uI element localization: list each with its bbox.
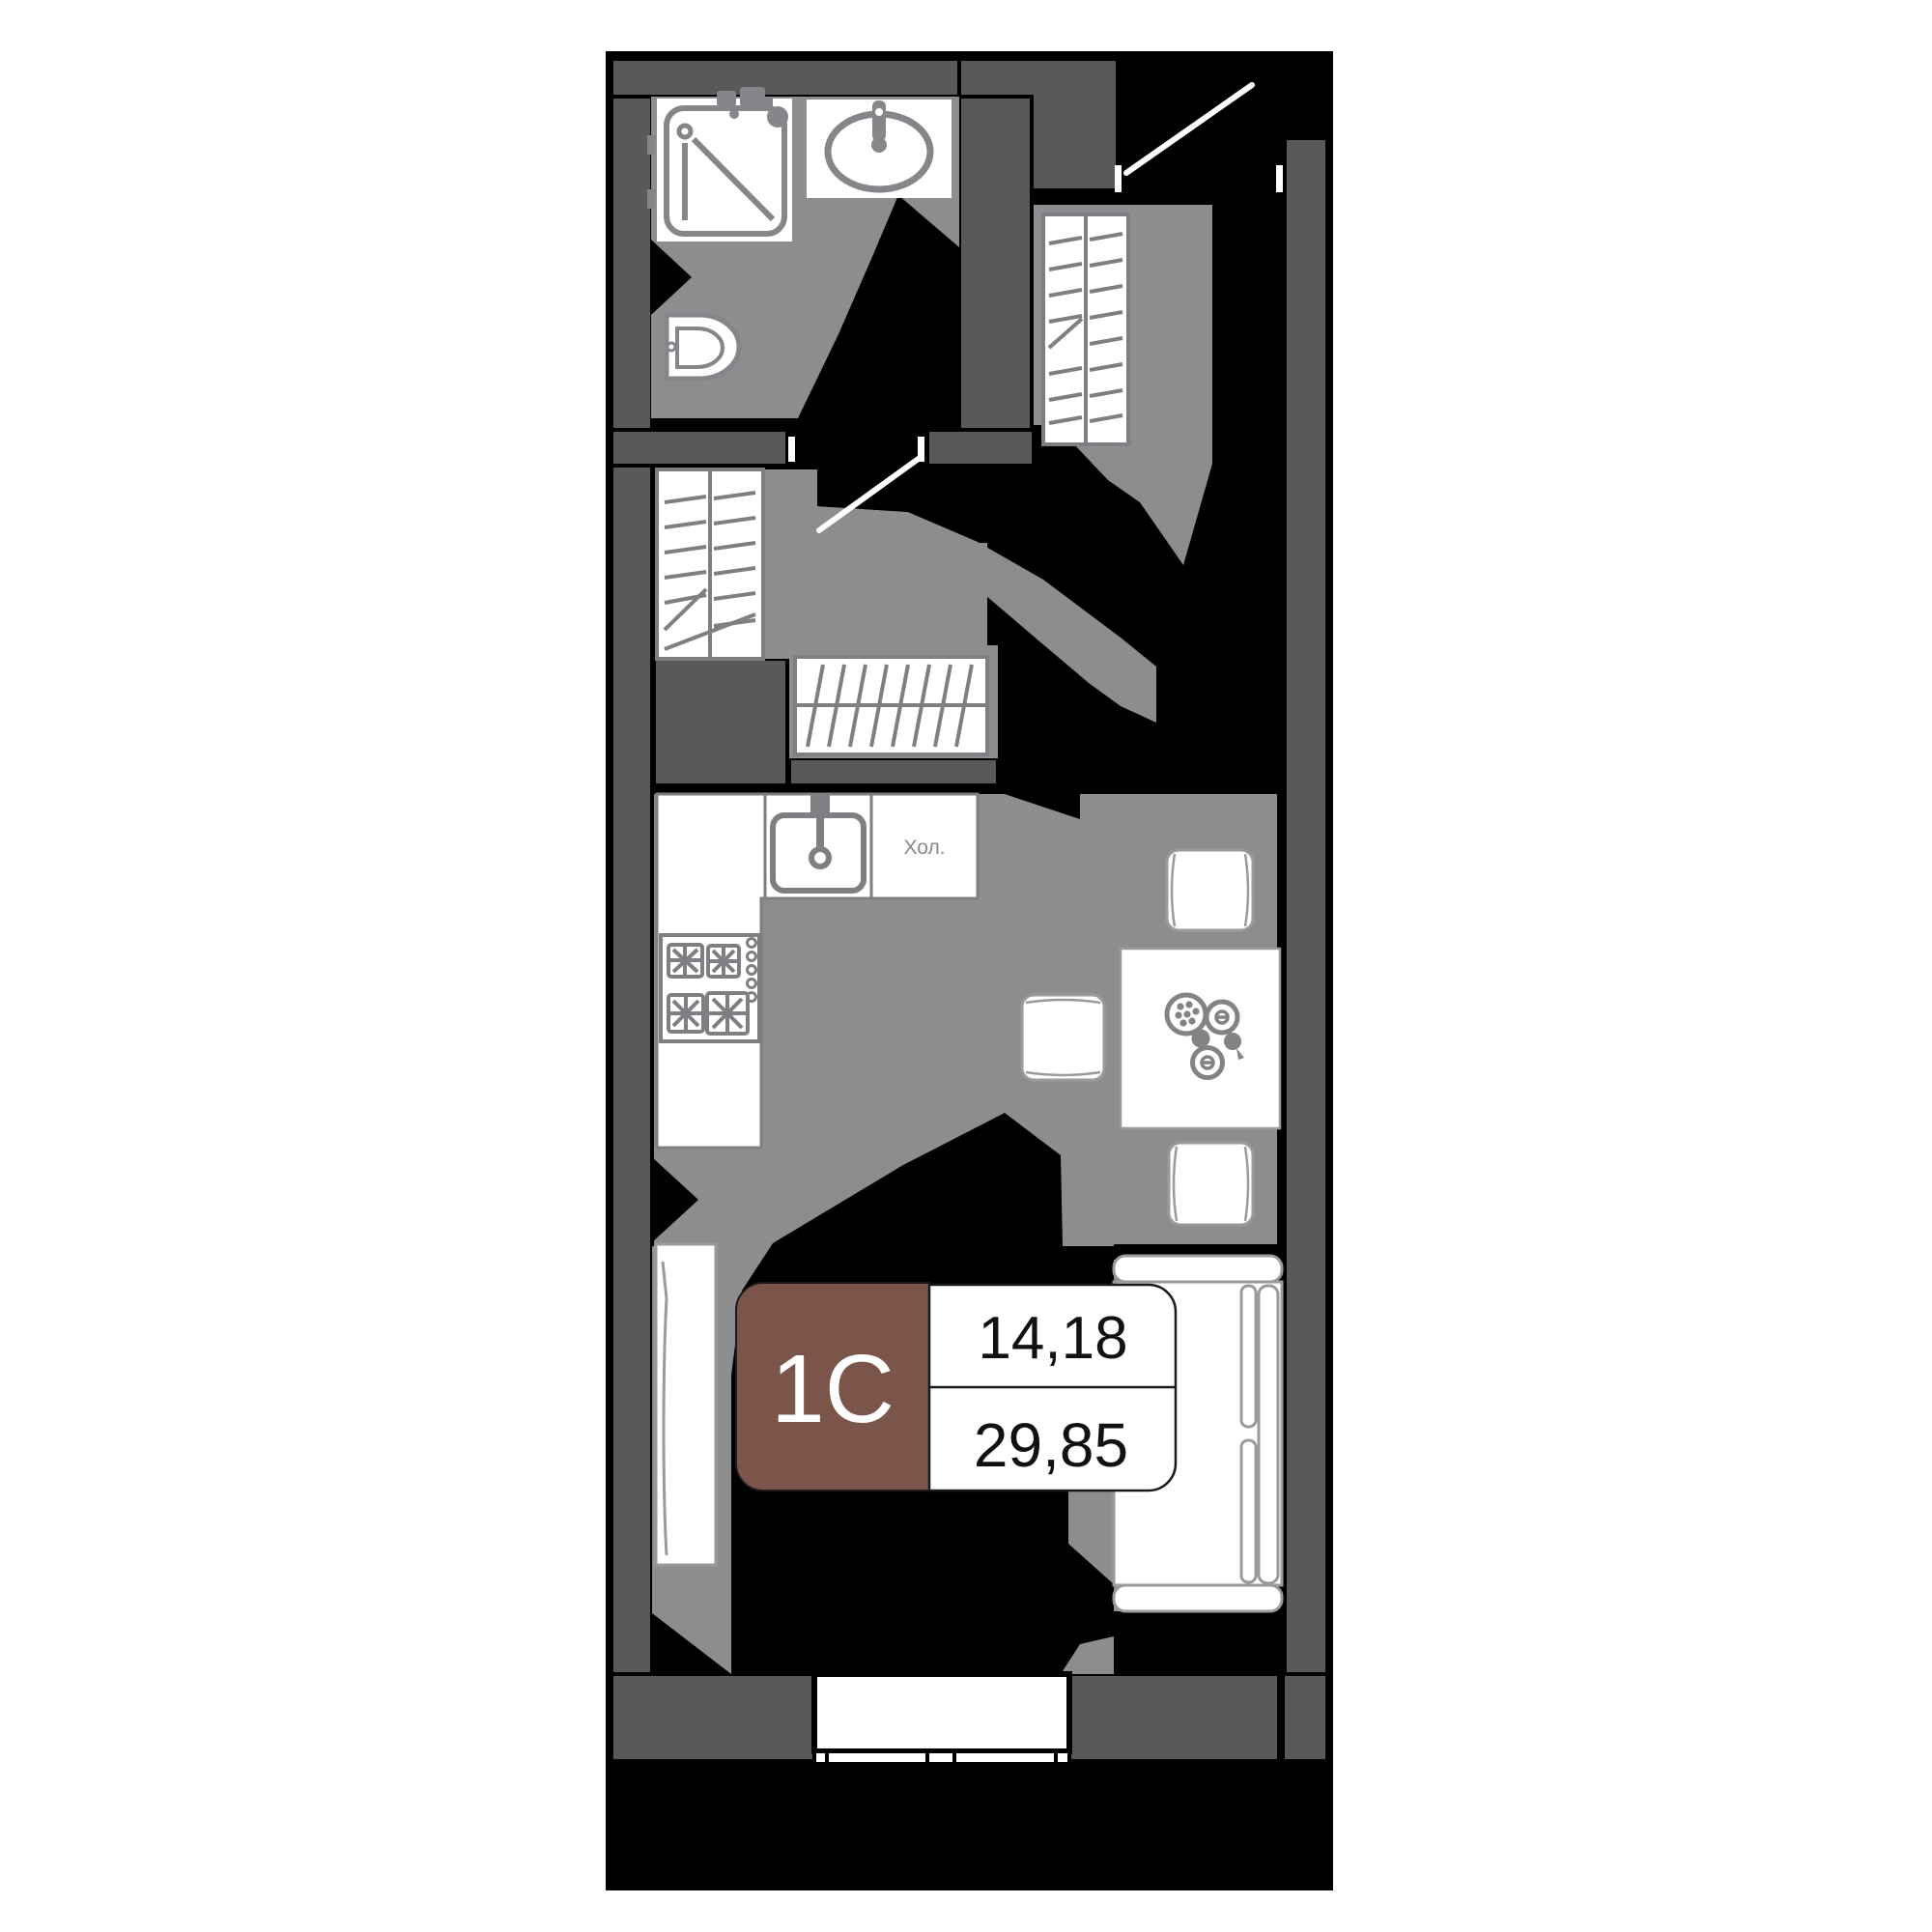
wall-below-closet	[654, 659, 787, 785]
wall-right	[1285, 138, 1327, 1761]
wall-bath-bottom-right	[927, 430, 1034, 466]
upper-area-value: 14,18	[978, 1305, 1127, 1372]
chair-icon	[1167, 850, 1253, 930]
wall-bottom-left	[611, 1674, 814, 1761]
bathroom-sink-icon	[807, 99, 952, 198]
floor-plan-page: Хол.	[0, 0, 1932, 1932]
stove-icon	[661, 935, 759, 1041]
unit-type-label: 1С	[771, 1335, 895, 1443]
chair-icon	[1169, 1143, 1253, 1225]
floor-plan-canvas: Хол.	[0, 0, 1932, 1932]
wall-bottom-right	[1069, 1674, 1327, 1761]
hall-wardrobe-hatch-icon	[657, 469, 763, 659]
balcony-window-icon	[814, 1674, 1069, 1764]
sideboard-icon	[656, 1244, 716, 1565]
entry-wardrobe-hatch-icon	[1043, 214, 1128, 444]
burner-icon	[707, 993, 748, 1034]
burner-icon	[668, 945, 702, 977]
rug-hatch-icon	[795, 657, 987, 754]
shower-tray-icon	[647, 87, 792, 241]
fridge-zone-label: Хол.	[903, 837, 945, 859]
wall-bath-bottom-left	[611, 430, 787, 466]
wall-below-rug	[789, 758, 998, 785]
wall-bath-entry-divider	[959, 97, 1032, 430]
lower-area-value: 29,85	[974, 1410, 1128, 1480]
wall-left	[611, 59, 652, 1761]
burner-icon	[668, 995, 703, 1032]
chair-icon	[1022, 995, 1104, 1080]
toilet-icon	[667, 315, 739, 379]
shadow-under-bed	[1114, 1611, 1285, 1674]
unit-badge: 1С 14,18 29,85	[736, 1283, 1176, 1491]
